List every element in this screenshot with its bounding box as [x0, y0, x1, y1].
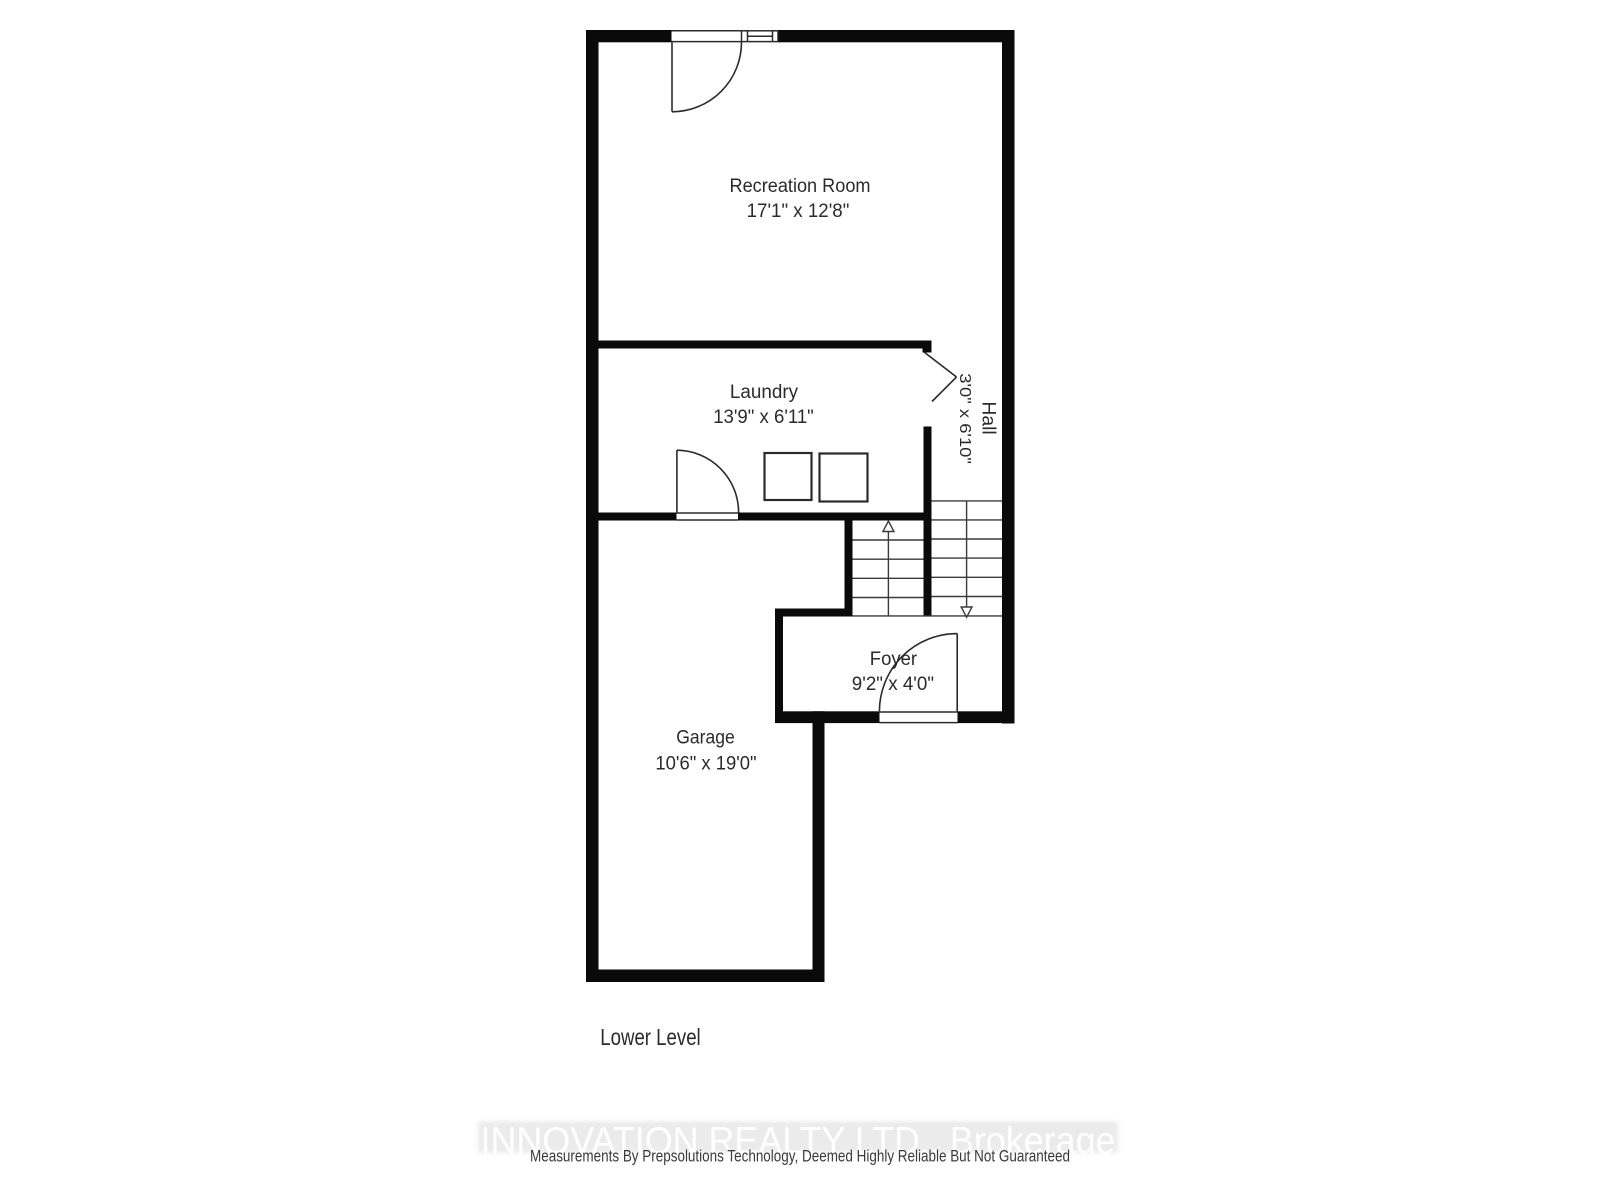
- svg-text:Recreation Room: Recreation Room: [730, 176, 871, 197]
- svg-text:17'1" x 12'8": 17'1" x 12'8": [747, 201, 850, 222]
- svg-text:10'6" x 19'0": 10'6" x 19'0": [655, 754, 756, 775]
- svg-text:3'0" x 6'10": 3'0" x 6'10": [956, 373, 973, 464]
- svg-text:Measurements By Prepsolutions: Measurements By Prepsolutions Technology…: [530, 1146, 1070, 1165]
- svg-text:Lower Level: Lower Level: [600, 1024, 700, 1050]
- svg-text:Laundry: Laundry: [730, 382, 799, 403]
- svg-text:13'9" x 6'11": 13'9" x 6'11": [713, 407, 814, 428]
- svg-text:9'2" x 4'0": 9'2" x 4'0": [852, 674, 934, 695]
- svg-text:Hall: Hall: [978, 401, 999, 434]
- svg-text:Foyer: Foyer: [870, 649, 918, 670]
- svg-text:Garage: Garage: [676, 727, 735, 748]
